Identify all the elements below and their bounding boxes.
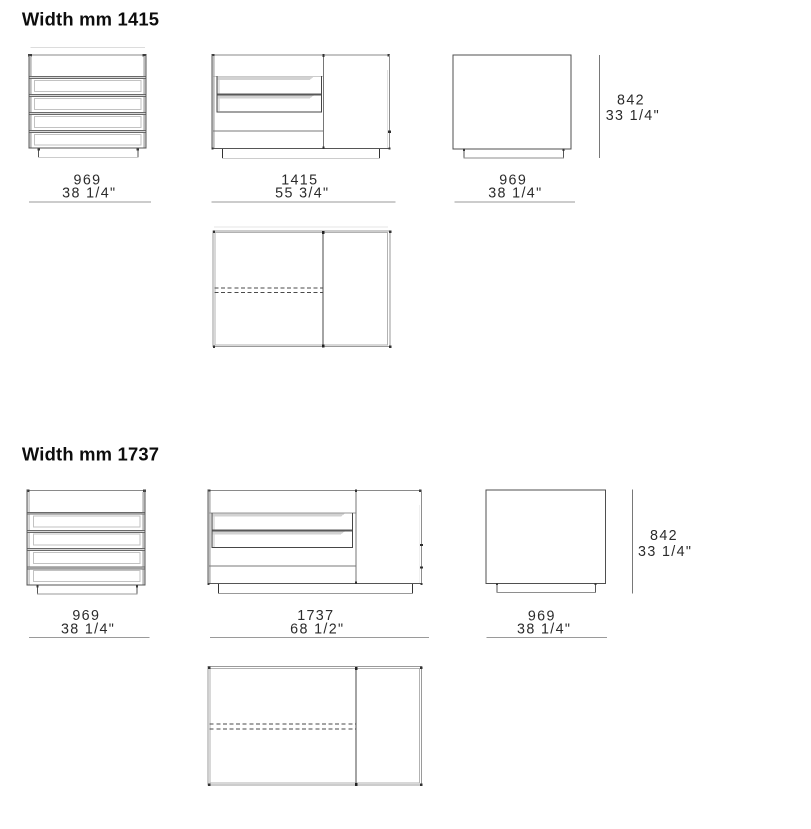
svg-text:68 1/2": 68 1/2"	[290, 621, 344, 637]
svg-text:38 1/4": 38 1/4"	[61, 621, 115, 637]
svg-text:842: 842	[617, 93, 645, 109]
svg-text:33 1/4": 33 1/4"	[606, 108, 660, 124]
svg-text:38 1/4": 38 1/4"	[62, 185, 116, 201]
svg-text:38 1/4": 38 1/4"	[517, 621, 571, 637]
svg-text:33 1/4": 33 1/4"	[638, 544, 692, 560]
svg-text:Width mm 1737: Width mm 1737	[22, 444, 159, 465]
svg-text:38 1/4": 38 1/4"	[488, 185, 542, 201]
svg-text:842: 842	[650, 528, 678, 544]
svg-text:Width mm 1415: Width mm 1415	[22, 9, 159, 30]
svg-text:55 3/4": 55 3/4"	[275, 185, 329, 201]
